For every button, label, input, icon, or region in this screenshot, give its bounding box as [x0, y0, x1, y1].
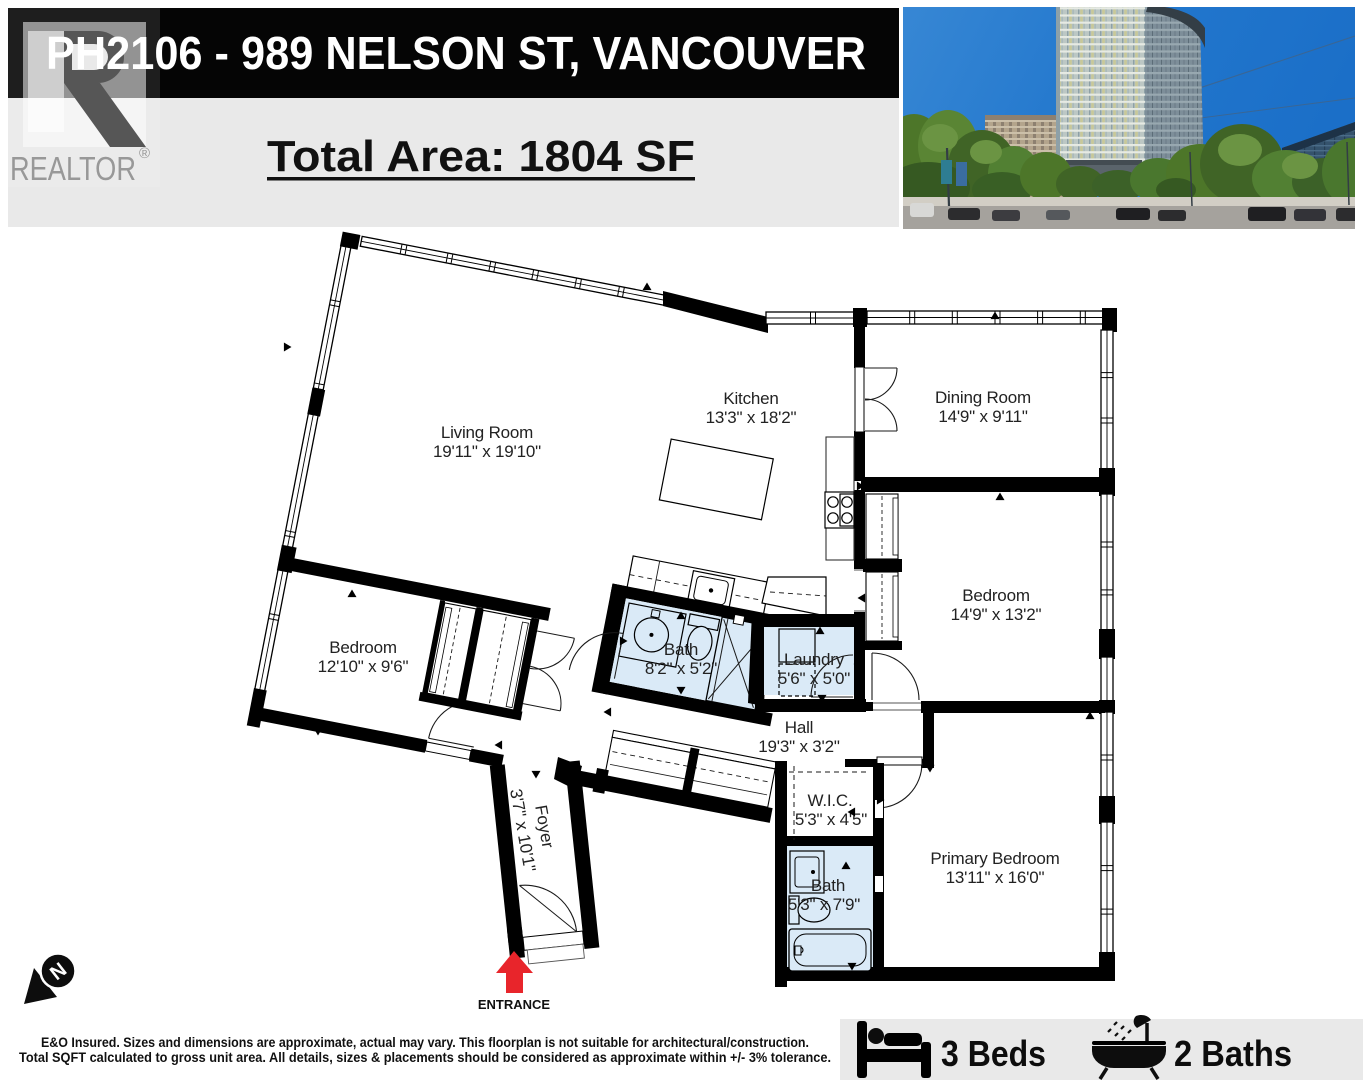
- svg-text:3 Beds: 3 Beds: [941, 1033, 1046, 1074]
- svg-text:13'3" x 18'2": 13'3" x 18'2": [706, 408, 797, 427]
- svg-text:Bedroom: Bedroom: [962, 586, 1030, 605]
- svg-text:Total Area: 1804 SF: Total Area: 1804 SF: [267, 132, 695, 181]
- svg-text:Bedroom: Bedroom: [329, 638, 397, 657]
- svg-text:5'6" x 5'0": 5'6" x 5'0": [778, 669, 850, 688]
- svg-text:Bath: Bath: [664, 640, 698, 659]
- svg-text:Laundry: Laundry: [784, 650, 845, 669]
- svg-text:8'2" x 5'2": 8'2" x 5'2": [645, 659, 717, 678]
- svg-text:Kitchen: Kitchen: [723, 389, 778, 408]
- svg-text:Bath: Bath: [811, 876, 845, 895]
- svg-text:19'11" x 19'10": 19'11" x 19'10": [433, 442, 541, 461]
- svg-text:®: ®: [139, 145, 150, 162]
- svg-text:W.I.C.: W.I.C.: [807, 791, 852, 810]
- svg-text:13'11" x 16'0": 13'11" x 16'0": [946, 868, 1045, 887]
- svg-text:12'10" x 9'6": 12'10" x 9'6": [318, 657, 409, 676]
- svg-text:Living Room: Living Room: [441, 423, 533, 442]
- svg-text:ENTRANCE: ENTRANCE: [478, 997, 551, 1012]
- svg-text:Primary Bedroom: Primary Bedroom: [930, 849, 1059, 868]
- svg-text:PH2106 - 989 NELSON ST, VANCOU: PH2106 - 989 NELSON ST, VANCOUVER: [46, 27, 866, 79]
- svg-text:Hall: Hall: [785, 718, 814, 737]
- svg-text:5'3" x 4'5": 5'3" x 4'5": [795, 810, 867, 829]
- svg-text:Dining Room: Dining Room: [935, 388, 1031, 407]
- svg-text:19'3" x 3'2": 19'3" x 3'2": [758, 737, 840, 756]
- svg-text:5'3" x 7'9": 5'3" x 7'9": [788, 895, 860, 914]
- svg-text:Total SQFT calculated to gross: Total SQFT calculated to gross unit area…: [19, 1050, 831, 1065]
- svg-text:REALTOR: REALTOR: [10, 150, 136, 187]
- svg-text:14'9" x 9'11": 14'9" x 9'11": [938, 407, 1028, 426]
- svg-text:E&O Insured. Sizes and dimensi: E&O Insured. Sizes and dimensions are ap…: [41, 1035, 809, 1050]
- svg-text:2 Baths: 2 Baths: [1174, 1033, 1292, 1074]
- svg-text:14'9" x 13'2": 14'9" x 13'2": [951, 605, 1042, 624]
